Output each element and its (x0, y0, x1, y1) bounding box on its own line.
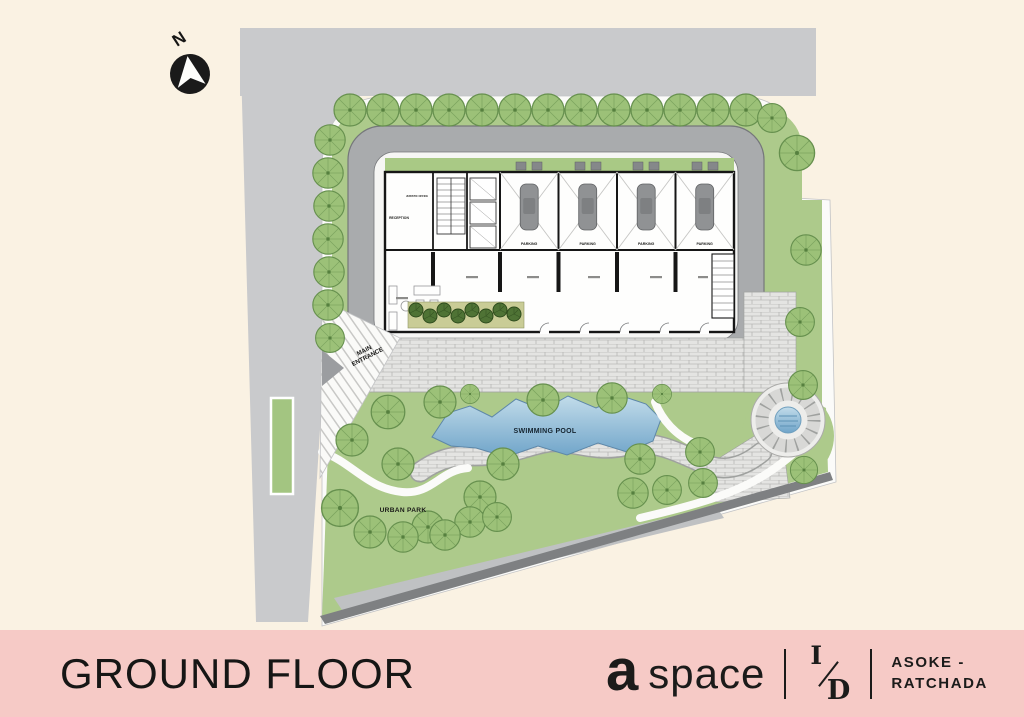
brand-a-logo: a (606, 646, 638, 695)
parking-label: PARKING (580, 242, 597, 246)
urban-park-label: URBAN PARK (380, 507, 427, 514)
juristic-office-label: JURISTIC OFFICE (406, 194, 428, 198)
brand-space-label: space (648, 650, 765, 698)
lift-bank (470, 178, 496, 248)
north-label: N (169, 28, 190, 51)
staircase (437, 178, 465, 234)
brand-logo: a space I D ASOKE - RATCHADA (606, 647, 988, 701)
monogram-d: D (827, 675, 850, 706)
divider (784, 649, 786, 699)
parking-label: PARKING (521, 242, 538, 246)
page-title: GROUND FLOOR (60, 650, 415, 698)
reception-label: RECEPTION (389, 216, 409, 220)
location-line1: ASOKE - (891, 654, 965, 671)
rear-staircase (712, 254, 734, 318)
parking-label: PARKING (697, 242, 714, 246)
footer-bar: GROUND FLOOR a space I D ASOKE - RATCHAD… (0, 630, 1024, 717)
building-north-planter (385, 158, 734, 171)
planter (408, 302, 524, 328)
north-arrow-icon (167, 51, 212, 96)
id-monogram: I D (805, 647, 851, 701)
divider (870, 649, 872, 699)
swimming-pool-label: SWIMMING POOL (513, 428, 576, 435)
building-footprint: JURISTIC OFFICE RECEPTION (385, 158, 734, 334)
location-line2: RATCHADA (891, 675, 988, 692)
parking-label: PARKING (638, 242, 655, 246)
ground-floor-plan-page: N (0, 0, 1024, 717)
road-median-strip (271, 398, 293, 494)
site-plan-canvas: N (0, 0, 1024, 717)
compass: N (167, 28, 212, 97)
monogram-i: I (810, 641, 822, 670)
project-location: ASOKE - RATCHADA (891, 653, 988, 694)
